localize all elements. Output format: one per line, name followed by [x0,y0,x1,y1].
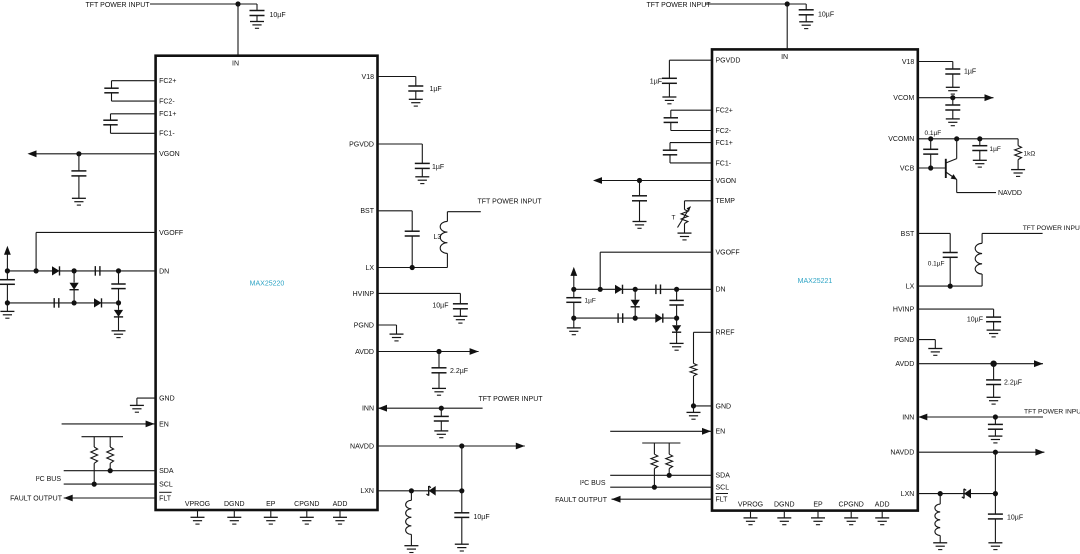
svg-text:1µF: 1µF [990,146,1001,153]
svg-text:SCL: SCL [159,482,173,489]
svg-text:FC1-: FC1- [159,131,175,138]
svg-text:10µF: 10µF [1007,515,1023,522]
svg-text:1µF: 1µF [964,69,976,76]
svg-text:SDA: SDA [716,473,731,480]
svg-text:FC2-: FC2- [716,128,732,135]
svg-text:T: T [672,215,676,222]
svg-text:LX: LX [365,265,374,272]
svg-text:V18: V18 [902,59,915,66]
svg-text:TFT POWER INPUT: TFT POWER INPUT [1023,225,1080,232]
svg-text:IN: IN [781,54,788,61]
svg-text:I²C BUS: I²C BUS [35,476,61,483]
svg-text:VGOFF: VGOFF [716,250,740,257]
svg-text:MAX25221: MAX25221 [798,278,833,285]
svg-text:VCOM: VCOM [893,95,914,102]
svg-text:NAVDD: NAVDD [890,450,914,457]
svg-text:PGND: PGND [354,322,374,329]
svg-text:CPGND: CPGND [294,501,319,508]
svg-text:1kΩ: 1kΩ [1024,151,1036,158]
svg-text:FAULT OUTPUT: FAULT OUTPUT [10,496,63,503]
svg-text:EP: EP [813,501,823,508]
svg-text:VPROG: VPROG [185,501,210,508]
svg-text:VCB: VCB [900,165,915,172]
svg-text:SCL: SCL [716,485,730,492]
svg-text:FC2+: FC2+ [159,78,176,85]
svg-text:EN: EN [716,429,726,436]
svg-text:INN: INN [362,406,374,413]
svg-text:DGND: DGND [774,501,795,508]
svg-text:NAVDD: NAVDD [350,443,374,450]
svg-text:PGND: PGND [894,337,914,344]
svg-text:0.1µF: 0.1µF [925,130,942,137]
svg-text:FC2+: FC2+ [716,108,733,115]
svg-text:10µF: 10µF [270,12,286,19]
svg-text:1µF: 1µF [585,297,596,304]
svg-text:NAVDD: NAVDD [998,190,1022,197]
svg-text:DN: DN [716,287,726,294]
svg-text:RREF: RREF [716,330,735,337]
svg-text:I²C BUS: I²C BUS [580,480,606,487]
svg-text:TFT POWER INPUT: TFT POWER INPUT [478,199,543,206]
svg-text:IN: IN [232,60,239,67]
svg-text:GND: GND [159,396,175,403]
svg-text:2.2µF: 2.2µF [450,368,468,375]
svg-text:10µF: 10µF [967,317,983,324]
svg-text:HVINP: HVINP [353,291,375,298]
svg-text:FAULT OUTPUT: FAULT OUTPUT [555,497,608,504]
svg-text:LXN: LXN [360,488,374,495]
svg-text:1µF: 1µF [650,79,662,86]
svg-text:0.1µF: 0.1µF [928,261,945,268]
svg-text:FLT: FLT [716,497,729,504]
svg-text:DN: DN [159,268,169,275]
svg-text:1µF: 1µF [430,86,442,93]
svg-text:BST: BST [360,208,374,215]
svg-text:VGON: VGON [159,151,180,158]
svg-text:PGVDD: PGVDD [349,141,374,148]
svg-text:TFT POWER INPUT: TFT POWER INPUT [1024,409,1080,416]
svg-text:DGND: DGND [224,501,245,508]
svg-text:INN: INN [902,414,914,421]
svg-text:1µF: 1µF [432,164,444,171]
svg-text:MAX25220: MAX25220 [250,281,285,288]
svg-text:V18: V18 [362,74,375,81]
svg-text:EP: EP [266,501,276,508]
svg-text:FC1+: FC1+ [159,111,176,118]
svg-text:HVINP: HVINP [893,307,915,314]
svg-text:VGOFF: VGOFF [159,230,183,237]
svg-text:EN: EN [159,421,169,428]
svg-text:FLT: FLT [159,495,172,502]
svg-text:AVDD: AVDD [355,349,374,356]
svg-text:L3: L3 [434,234,442,241]
svg-text:FC1-: FC1- [716,160,732,167]
svg-text:ADD: ADD [875,501,890,508]
svg-text:PGVDD: PGVDD [716,58,741,65]
svg-text:FC1+: FC1+ [716,140,733,147]
svg-text:GND: GND [716,403,732,410]
svg-text:CPGND: CPGND [839,501,864,508]
svg-text:10µF: 10µF [818,12,834,19]
svg-text:ADD: ADD [333,501,348,508]
svg-text:AVDD: AVDD [895,361,914,368]
svg-text:TFT POWER INPUT: TFT POWER INPUT [647,2,712,9]
svg-text:BST: BST [901,231,915,238]
svg-text:10µF: 10µF [474,514,490,521]
svg-text:VCOMN: VCOMN [888,136,914,143]
svg-text:TFT POWER INPUT: TFT POWER INPUT [479,396,544,403]
svg-text:LXN: LXN [901,491,915,498]
svg-text:2.2µF: 2.2µF [1004,380,1022,387]
svg-text:VPROG: VPROG [738,501,763,508]
svg-text:LX: LX [906,284,915,291]
svg-text:TFT POWER INPUT: TFT POWER INPUT [86,2,151,9]
svg-text:10µF: 10µF [432,303,448,310]
svg-text:TEMP: TEMP [716,198,736,205]
svg-text:VGON: VGON [716,178,737,185]
svg-text:SDA: SDA [159,468,174,475]
svg-text:FC2-: FC2- [159,99,175,106]
